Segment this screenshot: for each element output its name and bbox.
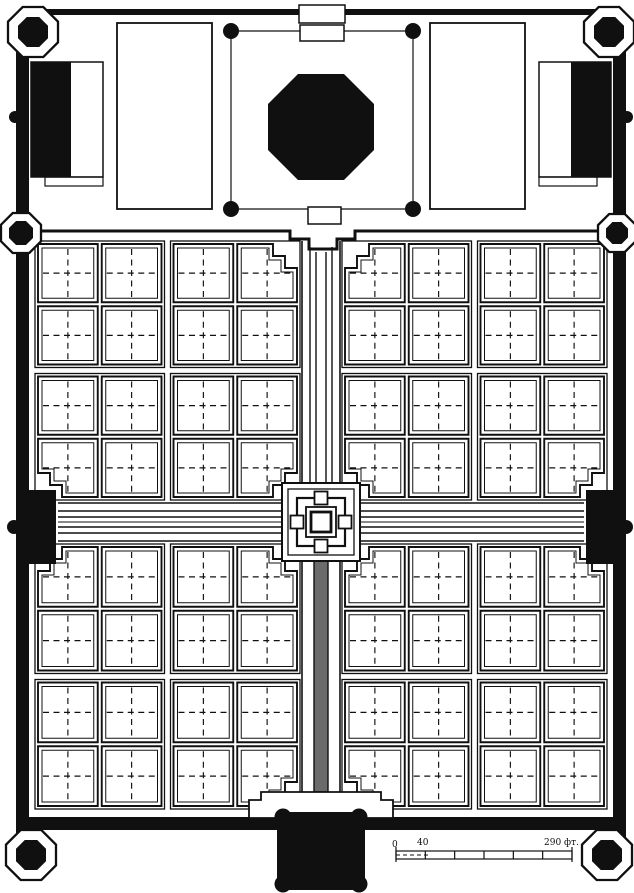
plot-quartering-lines [414,552,464,602]
garden-plot [174,547,234,607]
platform-pier [223,23,239,39]
west-gate-bastion [7,520,21,534]
plot-quartering-lines [179,751,229,801]
garden-plot [409,611,469,671]
garden-plot [237,244,297,302]
plot-quartering-lines [179,382,229,430]
garden-plot [409,306,469,364]
garden-plot [174,746,234,806]
garden-plot [544,746,604,806]
plot-quartering-lines [350,688,400,738]
platform-step-south [315,540,328,553]
northeast-corner-tower [584,7,634,57]
west-wall [16,30,29,845]
north-south-walkway-lower [302,561,340,792]
plot-quartering-lines [107,382,157,430]
plot-quartering-lines [414,249,464,297]
garden-plot [409,683,469,743]
garden-plot [409,746,469,806]
water-channel [314,561,328,792]
plot-quartering-lines [486,444,536,492]
plot-quartering-lines [43,311,93,359]
plot-quartering-lines [107,311,157,359]
garden-plot [544,244,604,302]
garden-plot [481,611,541,671]
plot-quartering-lines [179,444,229,492]
plot-quartering-lines [179,616,229,666]
garden-plot [102,306,162,364]
southwest-corner-tower [6,830,56,880]
garden-quadrant-ne [342,241,607,500]
gateway-turret [351,876,368,893]
platform-north-entrance [300,25,344,41]
garden-plot [237,683,297,743]
plot-quartering-lines [179,688,229,738]
garden-quadrant-se [342,544,607,809]
garden-plot [102,683,162,743]
west-terrace-building [31,62,71,177]
east-wall-bastion [621,111,633,123]
garden-plot [481,377,541,435]
main-gateway-group [249,792,393,893]
garden-quadrant-nw [35,241,300,500]
garden-plot [38,244,98,302]
plot-quartering-lines [107,688,157,738]
east-building-plinth [539,177,597,186]
east-gate-bastion [619,520,633,534]
plot-quartering-lines [107,552,157,602]
plot-quartering-lines [350,616,400,666]
platform-pier [405,201,421,217]
garden-plot [237,611,297,671]
south-wall-west [16,817,277,830]
garden-plot [102,611,162,671]
garden-plot [38,683,98,743]
garden-plot [38,611,98,671]
terrace-courtyard-west [117,23,212,209]
east-mid-tower [598,214,634,252]
plot-quartering-lines [414,382,464,430]
northwest-corner-tower [8,7,58,57]
garden-plot [481,306,541,364]
gateway-turret [275,876,292,893]
garden-plot [38,306,98,364]
site-plan-figure: 0 40 290 фт. [0,0,634,893]
garden-plot [345,244,405,302]
garden-plot [174,683,234,743]
plot-quartering-lines [549,249,599,297]
plot-quartering-lines [43,616,93,666]
garden-plot [102,746,162,806]
south-wall-east [365,817,613,830]
central-pool [311,512,331,532]
garden-plot [345,611,405,671]
scale-label-end: 290 фт. [544,838,579,848]
central-platform [282,483,360,561]
platform-step-east [339,516,352,529]
plot-quartering-lines [107,444,157,492]
west-mid-tower [1,213,41,253]
terrace-garden-wall [29,231,613,249]
garden-plot [544,377,604,435]
garden-plot [345,306,405,364]
plot-quartering-lines [179,552,229,602]
garden-plot [409,439,469,497]
garden-plot [237,377,297,435]
garden-plot [481,439,541,497]
garden-plot [544,683,604,743]
plot-quartering-lines [179,311,229,359]
garden-plot [409,377,469,435]
platform-pier [405,23,421,39]
plot-quartering-lines [350,382,400,430]
garden-plot [481,547,541,607]
main-gateway [277,812,365,890]
plot-quartering-lines [242,616,292,666]
plot-quartering-lines [549,751,599,801]
plot-quartering-lines [242,688,292,738]
east-west-walkway-west [58,503,282,541]
mausoleum-octagon [268,74,374,180]
plot-quartering-lines [486,311,536,359]
garden-plot [544,306,604,364]
plot-block-border [35,241,165,368]
plot-quartering-lines [549,382,599,430]
garden-plot [102,377,162,435]
garden-plot [102,439,162,497]
plot-quartering-lines [43,249,93,297]
plot-quartering-lines [43,688,93,738]
plot-quartering-lines [414,311,464,359]
garden-plot [38,377,98,435]
garden-plot [38,746,98,806]
gateway-turret [275,809,292,826]
garden-quadrant-sw [35,544,300,809]
plot-quartering-lines [414,688,464,738]
plot-quartering-lines [549,616,599,666]
plot-quartering-lines [486,616,536,666]
west-building-plinth [45,177,103,186]
garden-plot [481,746,541,806]
west-gate [16,490,56,564]
platform-pier [223,201,239,217]
garden-plot [481,683,541,743]
garden-plot [345,683,405,743]
gateway-turret [351,809,368,826]
garden-plot [38,439,98,497]
plot-quartering-lines [350,311,400,359]
plot-quartering-lines [107,751,157,801]
terrace-courtyard-east [430,23,525,209]
plot-quartering-lines [43,751,93,801]
east-terrace-building [571,62,611,177]
garden-plot [544,611,604,671]
platform-south-entrance [308,207,341,224]
garden-plot [102,547,162,607]
plot-quartering-lines [43,382,93,430]
garden-plot [409,547,469,607]
southeast-corner-tower [582,830,632,880]
plot-block-border [478,241,608,368]
garden-plot [174,244,234,302]
scale-label-zero: 0 [392,840,398,850]
plot-quartering-lines [242,382,292,430]
plot-quartering-lines [107,249,157,297]
scale-label-forty: 40 [417,838,429,848]
platform-step-north [315,492,328,505]
tomb-terrace [31,23,611,224]
garden-plot [544,439,604,497]
plot-quartering-lines [549,311,599,359]
north-wall-gate [299,5,345,23]
garden-plot [174,377,234,435]
plot-quartering-lines [486,382,536,430]
platform-step-west [291,516,304,529]
scanned-plan-page: 0 40 290 фт. [0,0,634,893]
garden-plot [174,439,234,497]
scale-bar: 0 40 290 фт. [392,838,579,862]
garden-plot [345,377,405,435]
plot-quartering-lines [242,311,292,359]
garden-plot [481,244,541,302]
plot-quartering-lines [414,616,464,666]
garden-plot [174,306,234,364]
plot-quartering-lines [486,249,536,297]
plot-quartering-lines [486,751,536,801]
plot-quartering-lines [414,444,464,492]
east-wall [613,30,626,845]
plot-block-border [35,680,165,810]
plot-quartering-lines [107,616,157,666]
garden-plot [102,244,162,302]
plot-block-border [478,680,608,810]
plot-quartering-lines [486,688,536,738]
west-wall-bastion [9,111,21,123]
plot-quartering-lines [549,688,599,738]
garden-plot [409,244,469,302]
plot-quartering-lines [414,751,464,801]
north-south-walkway-upper [302,241,340,483]
plot-quartering-lines [179,249,229,297]
plot-quartering-lines [486,552,536,602]
garden-plot [237,306,297,364]
garden-plot [174,611,234,671]
east-west-walkway-east [360,503,584,541]
